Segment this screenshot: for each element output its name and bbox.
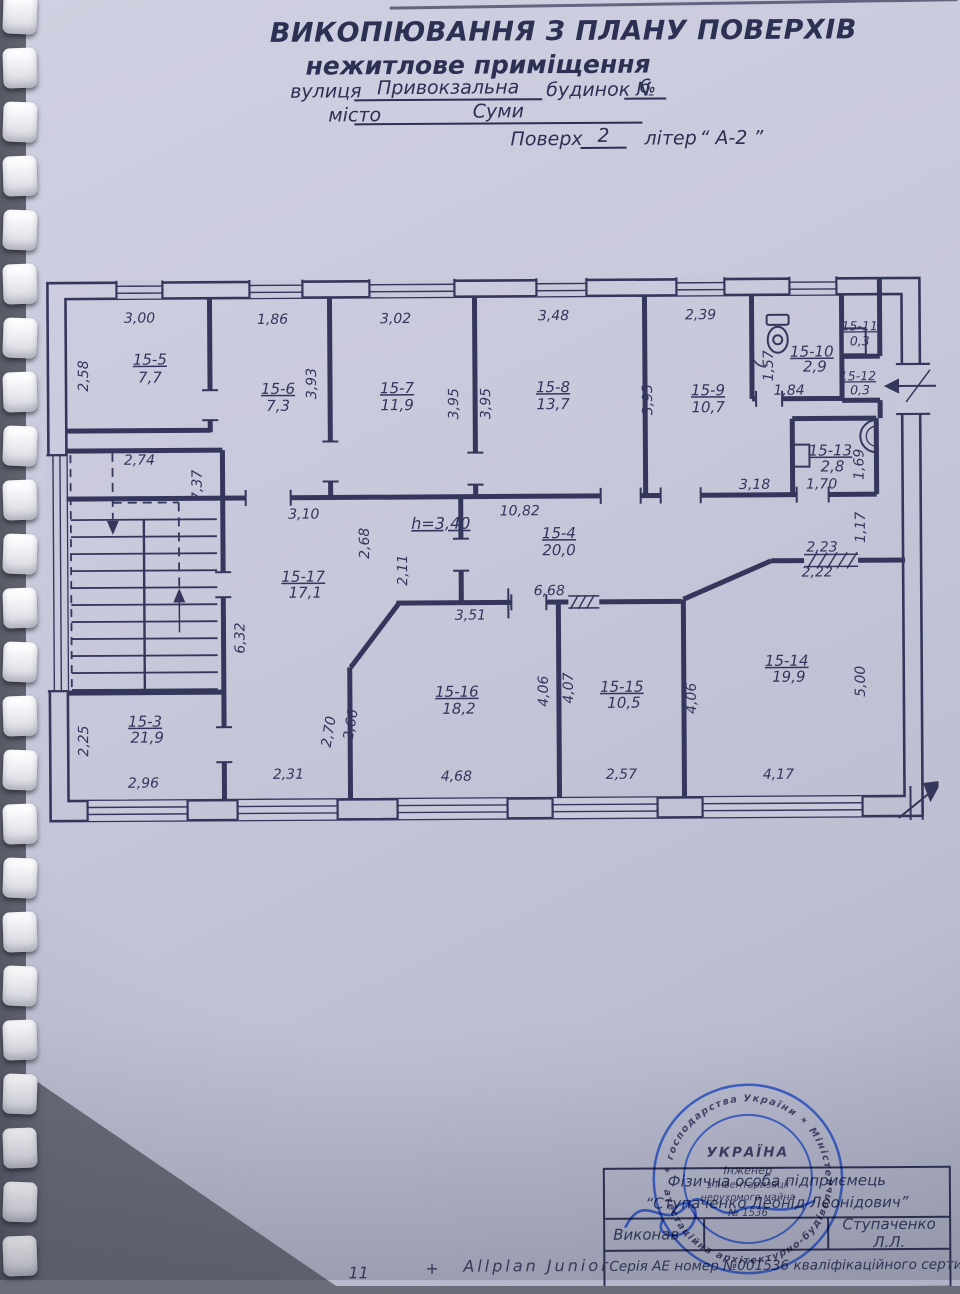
ceiling-height-note: h=3,40 <box>411 514 470 533</box>
dim-r16-bottom: 4,68 <box>441 769 472 785</box>
dim-r6-top: 1,86 <box>257 312 288 328</box>
dim-r17-bottom: 2,31 <box>273 767 304 783</box>
binder-hole <box>2 749 37 790</box>
dim-stair-right: 7,37 <box>190 470 206 501</box>
room-area-15-8: 13,7 <box>536 395 570 413</box>
dim-r6-right: 3,93 <box>304 368 320 399</box>
seal-number: № 1536 <box>727 1208 768 1219</box>
dim-r14-bottom: 4,17 <box>763 767 794 783</box>
paper-sheet: ВИКОПІЮВАННЯ З ПЛАНУ ПОВЕРХІВ нежитлове … <box>26 0 960 1286</box>
room-area-15-10: 2,9 <box>803 357 827 375</box>
dim-r4-top: 10,82 <box>500 503 540 519</box>
room-id-15-11: 15-11 <box>841 318 877 333</box>
room-id-15-4: 15-4 <box>542 524 576 542</box>
room-area-15-12: 0,3 <box>850 382 870 397</box>
binder-hole <box>2 101 37 142</box>
street-value: Привокзальна <box>354 76 542 101</box>
dim-r16-right: 4,06 <box>536 675 552 706</box>
binder-hole <box>2 803 37 844</box>
seal-role-1: Інженер <box>723 1164 772 1177</box>
floor-value: 2 <box>580 125 626 149</box>
binder-hole <box>2 0 37 35</box>
binder-hole <box>2 1073 37 1114</box>
floor-plan-drawing: 15-57,7 15-67,3 15-711,9 15-813,7 15-910… <box>39 268 938 839</box>
room-area-15-13: 2,8 <box>821 457 845 475</box>
certification-seal: ✶ господарства України ✶ Міністерство ре… <box>642 1078 857 1279</box>
room-id-15-12: 15-12 <box>840 368 876 383</box>
interior-walls <box>65 278 906 801</box>
binder-hole <box>2 587 37 628</box>
binder-hole <box>2 695 37 736</box>
binder-hole <box>2 371 37 412</box>
binder-hole <box>2 911 37 952</box>
room-id-15-7: 15-7 <box>380 379 415 397</box>
binder-hole <box>2 1181 37 1222</box>
room-area-15-9: 10,7 <box>691 398 725 416</box>
dim-r17-left: 6,32 <box>232 622 248 653</box>
dim-r14-left: 4,06 <box>684 683 700 714</box>
dim-r7-right: 3,95 <box>446 388 462 419</box>
dim-stair-top: 2,74 <box>124 453 155 469</box>
binder-hole <box>2 263 37 304</box>
binder-hole <box>2 47 37 88</box>
dim-r8-left: 3,95 <box>478 388 494 419</box>
dim-r16-diag: 2,66 <box>341 708 362 742</box>
photographed-floorplan-document: { "header": { "title": "ВИКОПІЮВАННЯ З П… <box>0 0 960 1280</box>
page-title: ВИКОПІЮВАННЯ З ПЛАНУ ПОВЕРХІВ <box>270 15 736 49</box>
dim-r13-right: 1,69 <box>851 449 867 480</box>
dim-r9-bottom: 3,18 <box>739 477 770 493</box>
dim-r8-top: 3,48 <box>538 308 569 324</box>
street-label: вулиця <box>290 80 361 102</box>
dim-r17-seg2: 2,11 <box>395 554 411 585</box>
binder-hole <box>2 1019 37 1060</box>
room-area-15-5: 7,7 <box>138 369 162 387</box>
room-area-15-14: 19,9 <box>772 668 806 686</box>
dim-r17-seg1: 2,68 <box>357 528 373 559</box>
dim-r14-top1: 2,23 <box>806 539 837 555</box>
binder-hole <box>2 857 37 898</box>
dim-r15-bottom: 2,57 <box>606 767 637 783</box>
seal-country: УКРАЇНА <box>706 1143 789 1161</box>
binder-hole <box>2 641 37 682</box>
room-id-15-5: 15-5 <box>133 350 167 368</box>
dim-r9-top: 2,39 <box>685 307 716 323</box>
room-id-15-9: 15-9 <box>691 381 725 399</box>
room-id-15-6: 15-6 <box>261 380 295 398</box>
stair-arrow-up-icon <box>173 588 185 602</box>
room-area-15-17: 17,1 <box>289 584 323 602</box>
dim-r14-right2: 5,00 <box>853 666 869 697</box>
binder-hole <box>2 425 37 466</box>
footer-plus-fragment: + <box>425 1259 439 1278</box>
dim-r3-bottom: 2,96 <box>128 776 159 792</box>
binder-hole <box>2 1127 37 1168</box>
room-area-15-4: 20,0 <box>542 541 576 559</box>
binder-hole <box>2 317 37 358</box>
page-top-edge-line <box>390 0 958 10</box>
seal-role-3: нерухомого майна <box>701 1192 796 1204</box>
room-id-15-16: 15-16 <box>435 683 479 701</box>
binder-hole <box>2 209 37 250</box>
room-id-15-8: 15-8 <box>536 378 570 396</box>
dim-r10-bottom: 1,84 <box>773 383 804 399</box>
dim-r8-right: 3,93 <box>640 384 656 415</box>
floor-label: Поверх <box>510 128 582 150</box>
liter-label: літер <box>644 127 696 149</box>
dim-r5-top: 3,00 <box>124 311 155 327</box>
room-area-15-11: 0,3 <box>850 333 870 348</box>
room-area-15-15: 10,5 <box>607 694 641 712</box>
binder-hole <box>2 1235 37 1276</box>
binder-hole <box>2 533 37 574</box>
dim-r14-top2: 2,22 <box>802 564 833 580</box>
seal-role-2: з інвентаризації <box>707 1178 791 1191</box>
stair-arrow-down-icon <box>107 521 119 535</box>
room-area-15-6: 7,3 <box>266 397 290 415</box>
room-area-15-7: 11,9 <box>380 396 414 414</box>
dim-r7-top: 3,02 <box>380 311 411 327</box>
building-value: 6 <box>624 75 666 99</box>
binder-hole <box>2 479 37 520</box>
dim-r3-left: 2,25 <box>76 725 92 756</box>
dim-r5-left: 2,58 <box>76 360 92 391</box>
room-labels: 15-57,7 15-67,3 15-711,9 15-813,7 15-910… <box>126 318 881 747</box>
footer-software-name: Allplan Junior <box>463 1256 610 1276</box>
binder-hole <box>2 965 37 1006</box>
room-area-15-16: 18,2 <box>442 700 476 718</box>
liter-value: “ А-2 ” <box>696 127 766 149</box>
dim-r17-diag: 2,70 <box>319 715 340 749</box>
dim-r13-bottom: 1,70 <box>806 476 837 492</box>
room-area-15-3: 21,9 <box>130 729 164 747</box>
dim-r4-bottom: 6,68 <box>534 583 565 599</box>
dim-r15-left: 4,07 <box>561 672 577 703</box>
dim-r16-top: 3,51 <box>455 608 486 624</box>
binder-hole <box>2 155 37 196</box>
city-value: Суми <box>354 100 642 126</box>
dim-r10-left: 1,57 <box>761 350 777 381</box>
dim-r17-top: 3,10 <box>288 507 319 523</box>
dim-r14-right1: 1,17 <box>853 512 869 543</box>
